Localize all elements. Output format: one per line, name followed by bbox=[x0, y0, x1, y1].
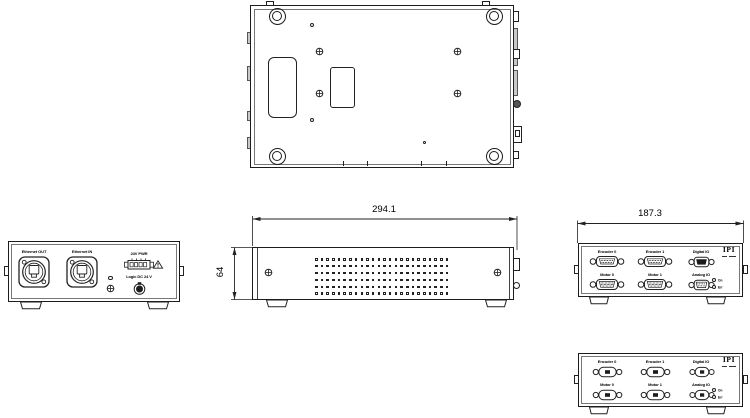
motor1-label: Motor 1 bbox=[640, 382, 670, 387]
logo-subtext-mark bbox=[722, 366, 736, 368]
on-led-label: On bbox=[718, 388, 734, 392]
foot bbox=[705, 406, 727, 415]
technical-drawing-canvas: 294.1 64 bbox=[0, 0, 750, 418]
side-tab bbox=[743, 375, 748, 384]
err-led bbox=[712, 395, 716, 399]
encoder0-connector-shell bbox=[592, 366, 623, 378]
brand-logo: IPI bbox=[714, 356, 744, 364]
err-led-label: Err bbox=[718, 395, 734, 399]
motor1-connector-shell bbox=[640, 389, 671, 401]
digital-io-connector-shell bbox=[689, 366, 715, 378]
io-panel-variant-view: Encoder 0 Encoder 1 Digital IO Motor 0 M… bbox=[0, 0, 750, 418]
encoder1-connector-shell bbox=[640, 366, 671, 378]
encoder1-label: Encoder 1 bbox=[640, 359, 670, 364]
encoder0-label: Encoder 0 bbox=[592, 359, 622, 364]
on-led bbox=[712, 388, 716, 392]
analog-io-connector-shell bbox=[689, 389, 715, 401]
digital-io-label: Digital IO bbox=[686, 359, 716, 364]
motor0-label: Motor 0 bbox=[592, 382, 622, 387]
analog-io-label: Analog IO bbox=[686, 382, 716, 387]
foot bbox=[588, 406, 610, 415]
motor0-connector-shell bbox=[592, 389, 623, 401]
